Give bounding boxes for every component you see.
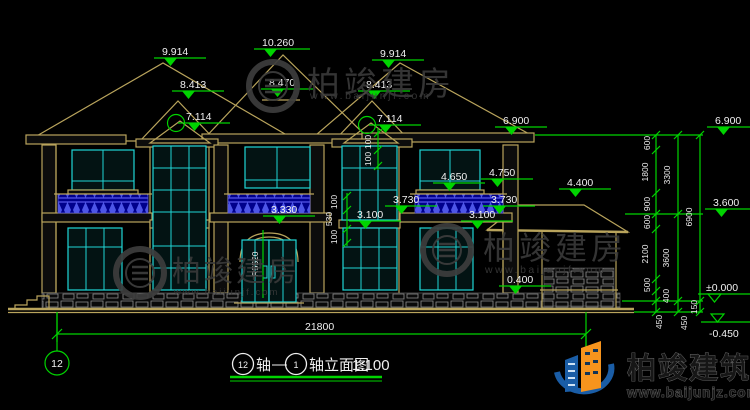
title-scale: 1:100	[352, 357, 390, 374]
svg-text:3600: 3600	[661, 248, 671, 267]
brand-logo: 柏竣建筑 www.baijunjz.com	[557, 336, 750, 400]
svg-text:±0.000: ±0.000	[706, 282, 738, 294]
svg-text:600: 600	[642, 136, 652, 150]
svg-text:2100: 2100	[640, 244, 650, 263]
svg-text:7.114: 7.114	[377, 113, 403, 125]
window-2f-left	[68, 150, 138, 194]
svg-text:www.baijunjf.com: www.baijunjf.com	[484, 264, 606, 276]
svg-text:8.413: 8.413	[180, 79, 206, 91]
svg-text:1: 1	[293, 360, 298, 370]
level-6900-eave: 6.900	[495, 115, 547, 135]
drawing-title: 12 轴 — 1 轴立面图 1:100	[230, 354, 390, 382]
svg-text:3.330: 3.330	[271, 204, 297, 216]
svg-text:3.730: 3.730	[491, 194, 517, 206]
svg-text:400: 400	[661, 289, 671, 303]
level-8413-left: 8.413	[172, 79, 224, 99]
elevation-drawing: 21800 12 R5520 100 100 100 530 100 600 1…	[0, 0, 750, 410]
center-balcony-slab	[210, 213, 330, 222]
svg-text:150: 150	[689, 300, 699, 314]
svg-text:100: 100	[363, 152, 373, 166]
svg-text:12: 12	[51, 358, 63, 370]
svg-text:450: 450	[679, 316, 689, 330]
svg-text:—: —	[272, 356, 287, 373]
svg-text:www.baijunjf.com: www.baijunjf.com	[173, 287, 279, 298]
svg-text:9.914: 9.914	[380, 48, 406, 60]
svg-text:4.750: 4.750	[489, 167, 515, 179]
level-9914-left: 9.914	[154, 46, 206, 66]
svg-text:100: 100	[329, 195, 339, 209]
level-neg0450-chain: -0.450	[701, 314, 750, 340]
watermark-top: 柏竣建房 www.baijunjf.com	[249, 62, 455, 110]
cad-elevation-screenshot: 21800 12 R5520 100 100 100 530 100 600 1…	[0, 0, 750, 410]
balcony-railing-left	[54, 194, 152, 213]
svg-text:6.900: 6.900	[503, 115, 529, 127]
svg-text:3.100: 3.100	[469, 209, 495, 221]
watermark-bottom-left: 柏竣建房 www.baijunjf.com	[116, 249, 300, 298]
svg-text:6900: 6900	[684, 207, 694, 226]
svg-text:100: 100	[329, 230, 339, 244]
svg-text:3.600: 3.600	[713, 197, 739, 209]
svg-text:www.baijunjf.com: www.baijunjf.com	[309, 90, 431, 102]
svg-text:100: 100	[363, 135, 373, 149]
svg-text:10.260: 10.260	[262, 37, 294, 49]
svg-text:530: 530	[324, 212, 334, 226]
svg-text:7.114: 7.114	[186, 111, 212, 123]
level-10260: 10.260	[254, 37, 310, 57]
level-7114-right: 7.114	[359, 113, 422, 134]
overall-width-dim: 21800	[305, 321, 334, 333]
brand-building-orange-icon	[581, 341, 601, 392]
svg-text:柏竣建房: 柏竣建房	[483, 230, 627, 266]
svg-text:500: 500	[642, 278, 652, 292]
svg-text:12: 12	[238, 360, 248, 370]
svg-text:3300: 3300	[662, 165, 672, 184]
level-0000-chain: ±0.000	[698, 282, 750, 302]
svg-text:450: 450	[654, 315, 664, 329]
svg-text:-0.450: -0.450	[709, 328, 739, 340]
svg-text:4.650: 4.650	[441, 171, 467, 183]
left-balcony-slab	[42, 213, 152, 222]
level-3600-chain: 3.600	[705, 197, 750, 217]
left-eave-fascia	[26, 135, 126, 144]
svg-text:1800: 1800	[640, 162, 650, 181]
window-1f-center-right	[343, 228, 397, 290]
window-1f-left	[68, 228, 122, 290]
svg-text:轴: 轴	[256, 357, 271, 374]
brand-url: www.baijunjz.com	[626, 385, 750, 400]
brand-building-blue-icon	[565, 355, 578, 392]
svg-text:9.914: 9.914	[162, 46, 188, 58]
svg-text:3.100: 3.100	[357, 209, 383, 221]
svg-text:600: 600	[642, 215, 652, 229]
svg-text:6.900: 6.900	[715, 115, 741, 127]
level-4400: 4.400	[559, 177, 611, 197]
svg-text:900: 900	[642, 197, 652, 211]
balcony-railing-center	[224, 194, 314, 213]
brand-name: 柏竣建筑	[627, 351, 750, 385]
svg-text:3.730: 3.730	[393, 194, 419, 206]
window-2f-center	[245, 147, 310, 188]
level-6900-chain: 6.900	[707, 115, 750, 135]
svg-text:柏竣建房: 柏竣建房	[172, 255, 300, 288]
svg-text:4.400: 4.400	[567, 177, 593, 189]
